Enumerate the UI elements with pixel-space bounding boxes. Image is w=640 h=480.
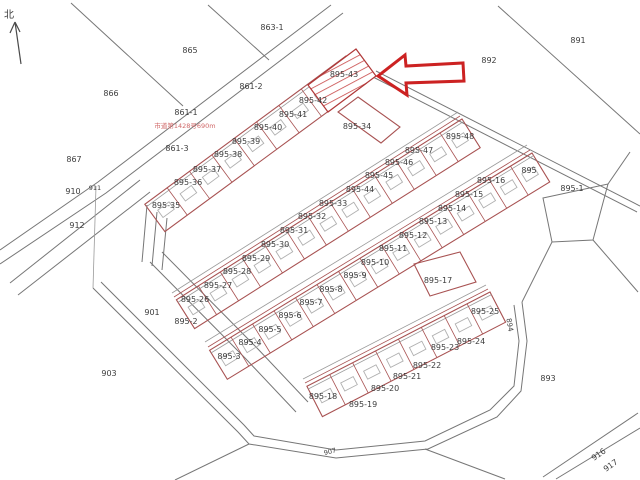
parcel-label: 895-35 xyxy=(152,202,180,210)
parcel-label: 895-32 xyxy=(298,213,326,221)
area-label: 866 xyxy=(103,90,118,98)
parcel-label: 895-48 xyxy=(446,133,474,141)
parcel-label: 895-18 xyxy=(309,393,337,401)
parcel-label: 895-29 xyxy=(242,255,270,263)
parcel-label: 895 xyxy=(521,167,536,175)
parcel-label: 895-42 xyxy=(299,97,327,105)
building-outline xyxy=(180,186,197,202)
parcel-label: 895-28 xyxy=(223,268,251,276)
area-label: 912 xyxy=(69,222,84,230)
area-label: 892 xyxy=(481,57,496,65)
parcel-label: 895-30 xyxy=(261,241,289,249)
building-outline xyxy=(409,341,426,355)
parcel-label: 895-12 xyxy=(399,232,427,240)
parcel-label: 895-22 xyxy=(413,362,441,370)
parcel-label: 895-3 xyxy=(217,353,240,361)
map-linework xyxy=(0,0,640,480)
area-label: 903 xyxy=(101,370,116,378)
building-outline xyxy=(341,377,358,391)
parcel-label: 895-15 xyxy=(455,191,483,199)
area-label: 895-1 xyxy=(560,185,583,193)
parcel-label: 895-31 xyxy=(280,227,308,235)
parcel-label: 895-6 xyxy=(278,312,301,320)
area-label: 861-3 xyxy=(165,145,188,153)
parcel-label: 895-20 xyxy=(371,385,399,393)
parcel-strips xyxy=(145,56,550,417)
parcel-label: 895-13 xyxy=(419,218,447,226)
area-label: 894 xyxy=(504,318,513,332)
parcel-label: 895-41 xyxy=(279,111,307,119)
area-label: 867 xyxy=(66,156,81,164)
parcel-label: 895-37 xyxy=(193,166,221,174)
building-outline xyxy=(387,353,404,367)
area-label: 901 xyxy=(144,309,159,317)
parcel-label: 895-44 xyxy=(346,186,374,194)
building-outline xyxy=(364,365,381,379)
area-label: 893 xyxy=(540,375,555,383)
parcel-label: 895-9 xyxy=(343,272,366,280)
parcel-label: 895-23 xyxy=(431,344,459,352)
parcel-label: 895-8 xyxy=(319,286,342,294)
parcel-label: 895-16 xyxy=(477,177,505,185)
area-label: 910 xyxy=(65,188,80,196)
parcel-label: 895-14 xyxy=(438,205,466,213)
area-label: 861-1 xyxy=(174,109,197,117)
parcel-label: 895-33 xyxy=(319,200,347,208)
area-label: 863-1 xyxy=(260,24,283,32)
parcel-label: 895-43 xyxy=(330,71,358,79)
parcel-label: 895-4 xyxy=(238,339,261,347)
parcel-label: 895-10 xyxy=(361,259,389,267)
road-annotation: 市道第1428号690m xyxy=(154,123,215,130)
parcel-label: 895-26 xyxy=(181,296,209,304)
compass-label: 北 xyxy=(4,6,14,21)
parcel-label: 895-38 xyxy=(214,151,242,159)
area-label: 861-2 xyxy=(239,83,262,91)
building-outline xyxy=(432,329,449,343)
parcel-label: 895-11 xyxy=(379,245,407,253)
parcel-label: 895-25 xyxy=(471,308,499,316)
area-label: 895-2 xyxy=(174,318,197,326)
parcel-label: 895-19 xyxy=(349,401,377,409)
parcel-label: 895-21 xyxy=(393,373,421,381)
parcel-label: 895-45 xyxy=(365,172,393,180)
area-label: 891 xyxy=(570,37,585,45)
north-arrow-icon xyxy=(10,22,21,64)
red-arrow-icon xyxy=(378,55,464,95)
area-label: 895-34 xyxy=(343,123,371,131)
parcel-label: 895-40 xyxy=(254,124,282,132)
parcel-label: 895-47 xyxy=(405,147,433,155)
area-label: 865 xyxy=(182,47,197,55)
parcel-label: 895-5 xyxy=(258,326,281,334)
area-label: 895-17 xyxy=(424,277,452,285)
parcel-label: 895-27 xyxy=(204,282,232,290)
parcel-label: 895-24 xyxy=(457,338,485,346)
parcel-label: 895-7 xyxy=(299,299,322,307)
parcel-label: 895-46 xyxy=(385,159,413,167)
area-label: 911 xyxy=(89,185,101,192)
building-outline xyxy=(455,318,472,332)
parcel-label: 895-39 xyxy=(232,138,260,146)
parcel-label: 895-36 xyxy=(174,179,202,187)
cadastral-map-canvas: 北 市道第1428号690m 895-43895-42895-41895-408… xyxy=(0,0,640,480)
